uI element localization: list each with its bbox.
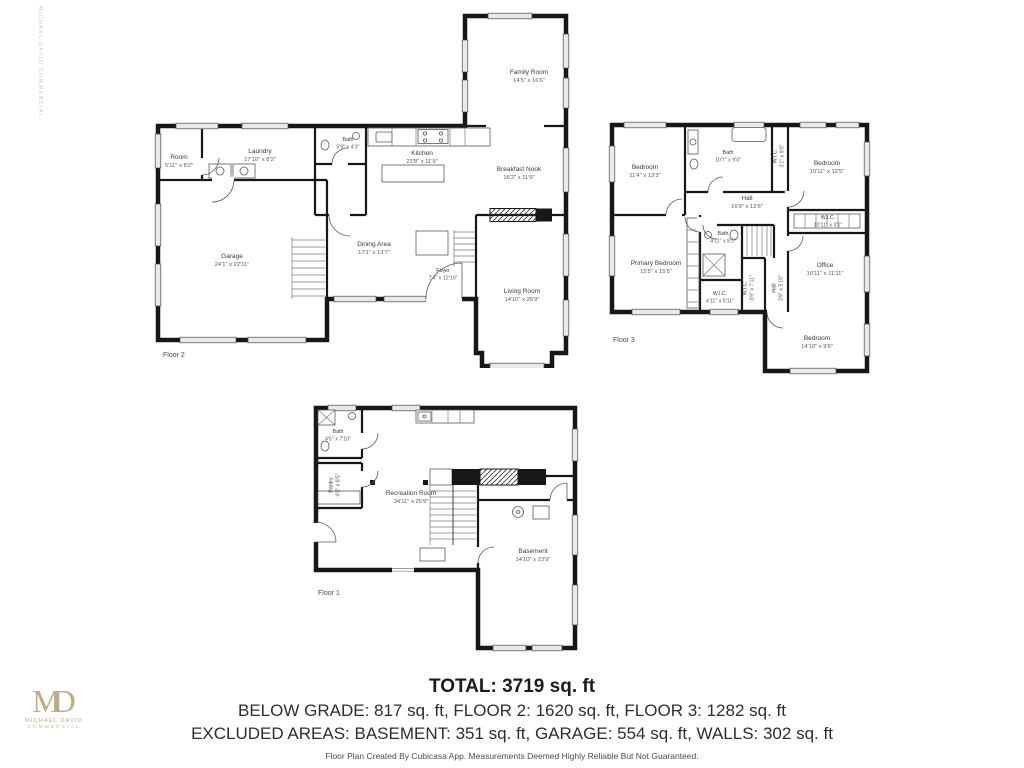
floor2-foyer-label: Foyer xyxy=(436,268,450,274)
floor3-wic-vert-dims: 3'9" x 7'11" xyxy=(750,275,756,301)
floor2-label: Floor 2 xyxy=(163,352,185,359)
floor3-office-label: Office xyxy=(817,262,834,269)
floor3-hall-vert-dims: 3'9" x 5'10" xyxy=(779,275,785,301)
floor1-pantry-dims: 4'5" x 8'5" xyxy=(336,473,342,496)
brand-monogram: MD xyxy=(22,686,86,716)
floor3-bedroom-se-label: Bedroom xyxy=(804,335,830,342)
floor1-label: Floor 1 xyxy=(318,590,340,597)
floor2-kitchen-dims: 23'8" x 11'9" xyxy=(406,159,437,165)
brand-logo: MD MICHAEL DAVID COMMERCIAL xyxy=(22,686,86,730)
floor3-bath-mid-dims: 4'11" x 8'2" xyxy=(710,239,736,245)
floor2-walls xyxy=(158,16,566,366)
floor3-bedroom-ne-dims: 10'11" x 12'5" xyxy=(810,169,845,175)
floor2-garage-dims: 24'1" x 22'11" xyxy=(215,262,250,268)
floor2-plan: Family Room 14'5" x 16'6" Room 5'11" x 8… xyxy=(152,12,572,368)
floor3-wic-top-dims: 3'1" x 9'0" xyxy=(780,144,786,167)
floor2-laundry-label: Laundry xyxy=(248,148,272,155)
floor3-wic-top-label: W.I.C. xyxy=(773,149,779,163)
floor3-primary-bedroom-label: Primary Bedroom xyxy=(631,260,682,267)
area-summary: TOTAL: 3719 sq. ft BELOW GRADE: 817 sq. … xyxy=(0,676,1024,761)
floor3-hall-label: Hall xyxy=(741,195,753,202)
floor1-bath-dims: 4'5" x 7'10" xyxy=(325,437,351,443)
floor-areas: BELOW GRADE: 817 sq. ft, FLOOR 2: 1620 s… xyxy=(0,701,1024,721)
disclaimer: Floor Plan Created By Cubicasa App. Meas… xyxy=(0,751,1024,761)
floor2-room-dims: 5'11" x 8'2" xyxy=(165,163,193,169)
brand-subtitle: COMMERCIAL xyxy=(22,725,86,730)
floor3-bath-top-dims: 10'7" x 9'0" xyxy=(715,158,741,164)
floor3-hall-dims: 16'9" x 12'6" xyxy=(731,204,763,210)
floor3-bath-top-label: Bath xyxy=(723,150,734,156)
floor2-family-room-dims: 14'5" x 16'6" xyxy=(513,78,545,84)
floor3-office-dims: 10'11" x 11'11" xyxy=(807,271,844,277)
floor1-bath-label: Bath xyxy=(333,429,344,435)
floor3-bedroom-se-dims: 14'10" x 9'6" xyxy=(801,344,833,350)
floor1-basement-label: Basement xyxy=(518,548,547,555)
floor2-fireplace xyxy=(490,209,552,222)
floor3-hall-vert-label: Hall xyxy=(772,283,778,292)
floor2-kitchen-label: Kitchen xyxy=(411,150,433,157)
floor3-wic-mid-dims: 4'11" x 5'11" xyxy=(706,299,734,305)
floor3-bath-mid-label: Bath xyxy=(718,231,729,237)
floor3-label: Floor 3 xyxy=(613,337,635,344)
water-heater xyxy=(513,507,524,518)
floor3-bedroom-ne-label: Bedroom xyxy=(814,160,840,167)
floor1-recreation-room-dims: 34'11" x 25'9" xyxy=(394,499,429,505)
floor3-bedroom-nw-dims: 11'4" x 13'3" xyxy=(629,173,660,179)
vertical-watermark: MICHAEL DAVID COMMERCIAL xyxy=(37,6,43,118)
floor3-primary-bedroom-dims: 15'5" x 15'5" xyxy=(640,269,672,275)
floor2-dining-area-dims: 17'1" x 13'7" xyxy=(358,250,390,256)
floor2-foyer-dims: 7'4" x 12'10" xyxy=(428,276,457,282)
floor2-room-label: Room xyxy=(170,154,187,161)
floor1-beam xyxy=(430,469,546,485)
kitchen-island xyxy=(382,165,444,182)
floor3-wic-vert-label: W.I.C. xyxy=(743,281,749,295)
floor1-basement-dims: 14'10" x 23'9" xyxy=(515,557,550,563)
excluded-areas: EXCLUDED AREAS: BASEMENT: 351 sq. ft, GA… xyxy=(0,724,1024,744)
floor2-living-room-dims: 14'10" x 25'9" xyxy=(504,297,539,303)
brand-name: MICHAEL DAVID xyxy=(22,718,86,724)
bathtub xyxy=(732,128,766,142)
floor2-dining-area-label: Dining Area xyxy=(357,241,391,248)
floor2-family-room-label: Family Room xyxy=(510,69,548,76)
floor1-recreation-room-label: Recreation Room xyxy=(386,490,437,497)
floor1-walls xyxy=(316,408,575,648)
floor1-pantry-label: Pantry xyxy=(329,477,335,493)
floor3-plan: Bedroom 11'4" x 13'3" Bath 10'7" x 9'0" … xyxy=(608,118,873,380)
floor2-bath-dims: 5'9" x 4'3" xyxy=(336,145,359,151)
floor2-garage-label: Garage xyxy=(221,253,243,260)
floor2-breakfast-nook-label: Breakfast Nook xyxy=(497,166,542,173)
total-area: TOTAL: 3719 sq. ft xyxy=(0,676,1024,698)
floor2-breakfast-nook-dims: 16'2" x 11'9" xyxy=(503,175,534,181)
floor2-bath-label: Bath xyxy=(343,137,354,143)
floor3-wic-right-dims: 10'11" x 3'1" xyxy=(814,223,843,229)
floor1-plan: Bath 4'5" x 7'10" Pantry 4'5" x 8'5" Rec… xyxy=(308,403,598,658)
floor2-laundry-dims: 17'10" x 8'2" xyxy=(244,157,276,163)
floor3-wic-right-label: W.I.C. xyxy=(821,215,835,221)
floor3-bedroom-nw-label: Bedroom xyxy=(632,164,658,171)
floor2-living-room-label: Living Room xyxy=(504,288,540,295)
floor3-wic-mid-label: W.I.C. xyxy=(713,291,727,297)
